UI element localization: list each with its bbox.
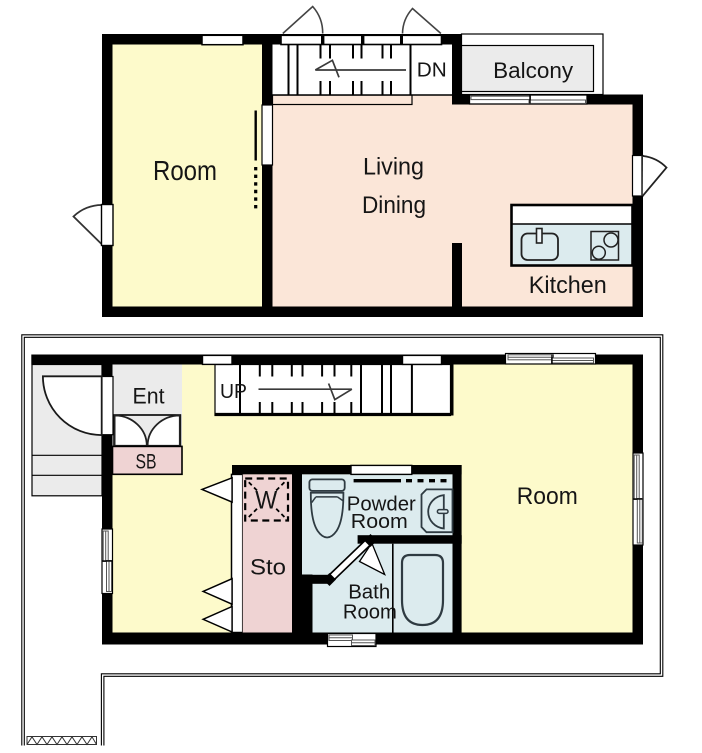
svg-text:DN: DN xyxy=(417,59,447,82)
svg-text:W: W xyxy=(255,487,277,515)
svg-text:Room: Room xyxy=(153,155,217,186)
svg-text:SB: SB xyxy=(136,450,157,473)
svg-text:Dining: Dining xyxy=(362,192,426,219)
svg-text:Kitchen: Kitchen xyxy=(529,272,607,299)
svg-text:UP: UP xyxy=(220,381,247,403)
svg-text:Sto: Sto xyxy=(250,555,286,580)
svg-text:Room: Room xyxy=(351,510,408,533)
svg-text:Balcony: Balcony xyxy=(493,58,573,83)
svg-text:Ent: Ent xyxy=(133,384,165,409)
svg-text:Living: Living xyxy=(363,154,424,181)
svg-text:Room: Room xyxy=(517,483,578,510)
svg-text:Room: Room xyxy=(343,600,397,623)
